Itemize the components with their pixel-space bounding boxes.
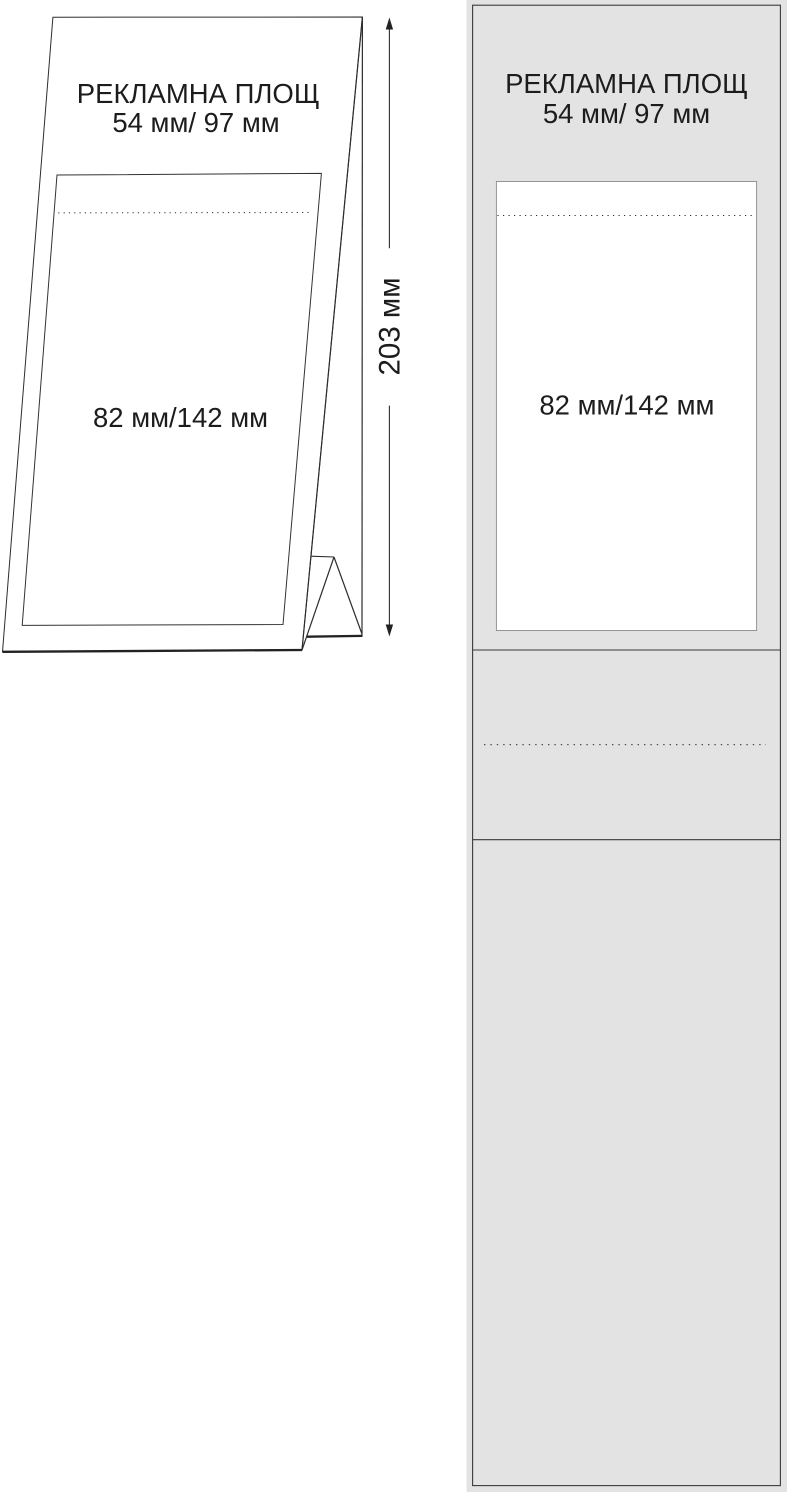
svg-text:203 мм: 203 мм — [374, 278, 407, 376]
svg-text:82 мм/142 мм: 82 мм/142 мм — [539, 390, 714, 421]
svg-text:54 мм/ 97 мм: 54 мм/ 97 мм — [543, 98, 710, 129]
svg-text:82 мм/142 мм: 82 мм/142 мм — [93, 402, 268, 433]
svg-text:РЕКЛАМНА ПЛОЩ: РЕКЛАМНА ПЛОЩ — [505, 68, 748, 99]
svg-text:54 мм/ 97 мм: 54 мм/ 97 мм — [112, 107, 279, 138]
svg-text:РЕКЛАМНА ПЛОЩ: РЕКЛАМНА ПЛОЩ — [77, 78, 320, 109]
